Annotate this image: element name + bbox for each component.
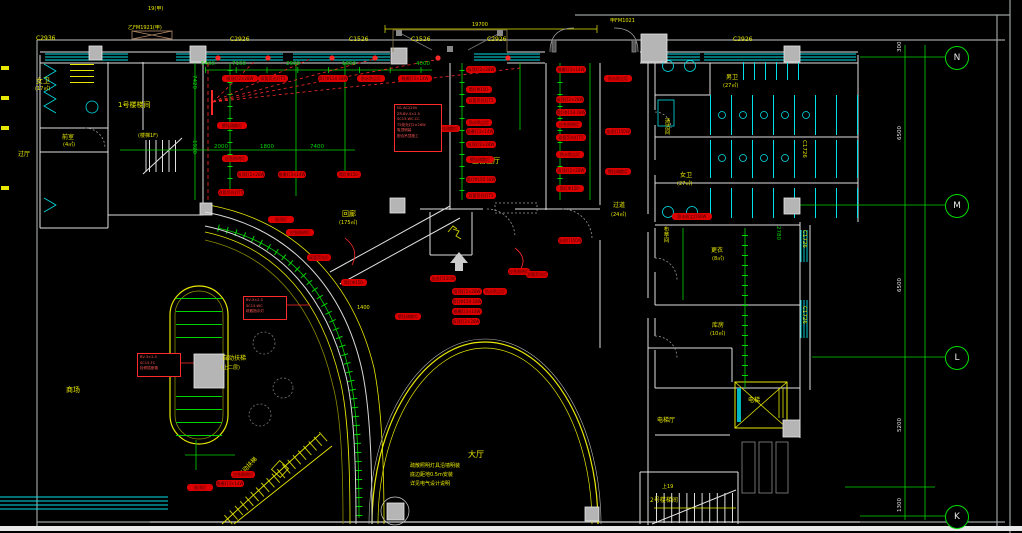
- luminaire-tag: 吸顶灯2×28W: [466, 141, 496, 148]
- room-label: 1号楼梯间: [118, 102, 150, 109]
- luminaire-tag: 格栅灯3×14W: [556, 66, 586, 73]
- room-area: (上二层): [221, 366, 240, 371]
- room-area: (27㎡): [723, 84, 738, 89]
- window-tag: C2926: [230, 37, 249, 43]
- annotation-layer: C2936C2926C1526C1526C2926C2926C1726C1726…: [0, 0, 1022, 533]
- axis-dimension: 6500: [898, 278, 904, 292]
- room-label: 男卫: [726, 75, 738, 81]
- door-tag: 19(甲): [148, 7, 163, 12]
- note-line: 检修插座箱: [140, 366, 178, 372]
- room-label: 大厅: [468, 451, 484, 459]
- room-label: 布草间: [662, 226, 668, 243]
- room-label: 过道: [613, 203, 625, 209]
- luminaire-tag: 防水防尘灯60W: [556, 151, 584, 158]
- room-label: 过厅: [18, 152, 30, 158]
- dimension: 19700: [472, 23, 488, 28]
- room-label: 电梯: [748, 398, 760, 404]
- dimension: 5400: [201, 62, 215, 68]
- cad-floor-plan-viewport: C2936C2926C1526C1526C2926C2926C1726C1726…: [0, 0, 1022, 533]
- luminaire-tag: 筒灯Φ150-18W: [466, 86, 492, 93]
- luminaire-tag: 吸顶灯2×28W: [237, 171, 265, 178]
- room-area: (17㎡): [35, 87, 50, 92]
- door-tag: 乙FM1921(甲): [128, 26, 162, 31]
- room-label: 女卫: [36, 78, 50, 85]
- note-text: 疏散照明灯具沿墙明装: [410, 464, 460, 469]
- room-label: 电梯厅: [657, 418, 675, 424]
- luminaire-tag: 吸顶灯2×28W: [268, 216, 294, 223]
- circuit-note-box: N1 AC220VZR-BV-3×2.5SC15-WC.CCT5荧光灯2×28W…: [394, 104, 442, 152]
- luminaire-tag: 双管荧光灯T5: [526, 271, 548, 278]
- circuit-note-box: BV-3×2.5SC15-FC检修插座箱: [137, 353, 181, 377]
- luminaire-tag: 吸顶灯2×28W: [452, 288, 482, 295]
- luminaire-tag: 筒灯Φ150-18W: [337, 171, 361, 178]
- axis-dimension: 1300: [898, 498, 904, 512]
- window-tag: C1526: [411, 37, 430, 43]
- room-area: (10㎡): [710, 332, 725, 337]
- luminaire-tag: 壁挂疏散灯: [466, 156, 494, 163]
- room-area: (楼梯1F): [138, 134, 158, 139]
- dimension: 1920: [191, 140, 197, 154]
- axis-dimension: 6500: [898, 126, 904, 140]
- window-tag: C2926: [487, 37, 506, 43]
- room-area: (24㎡): [611, 213, 626, 218]
- luminaire-tag: 防水防尘灯60W: [466, 119, 492, 126]
- luminaire-tag: 筒灯Φ150-18W: [466, 176, 496, 183]
- luminaire-tag: 壁挂疏散灯: [605, 168, 631, 175]
- luminaire-tag: 防水防尘灯60W: [604, 75, 632, 82]
- dimension: 2000: [214, 145, 228, 151]
- luminaire-tag: 筒灯Φ150-18W: [452, 298, 482, 305]
- luminaire-tag: 金卤灯150W: [430, 275, 456, 282]
- note-text: 底边距地0.5m安装: [410, 473, 453, 478]
- window-tag: C1726: [801, 230, 807, 248]
- room-area: (27㎡): [677, 182, 692, 187]
- luminaire-tag: 吸顶灯2×28W: [466, 66, 496, 73]
- luminaire-tag: 双管荧光灯T5: [556, 134, 586, 141]
- dimension: 1650: [342, 62, 356, 68]
- luminaire-tag: 应急照明灯: [231, 471, 255, 478]
- luminaire-tag: 应急照明灯: [286, 229, 314, 236]
- window-tag: C2926: [733, 37, 752, 43]
- grid-axis-bubble: N: [945, 46, 969, 70]
- luminaire-tag: 双管荧光灯T5: [466, 192, 496, 199]
- luminaire-tag: 吸顶灯2×28W: [187, 484, 213, 491]
- luminaire-tag: 应急照明灯: [222, 155, 248, 162]
- grid-axis-bubble: K: [945, 505, 969, 529]
- luminaire-tag: 吸顶灯2×28W: [452, 318, 480, 325]
- luminaire-tag: 筒灯Φ150-18W: [318, 75, 348, 82]
- note-line: 配合吊顶施工: [397, 134, 439, 140]
- luminaire-tag: 格栅灯3×14W: [466, 128, 494, 135]
- luminaire-tag: 双管荧光灯T5: [307, 254, 331, 261]
- room-label: 前室: [62, 135, 74, 141]
- luminaire-tag: 双管荧光灯T5: [466, 97, 496, 104]
- luminaire-tag: 格栅灯3×14W: [452, 308, 482, 315]
- room-label: 2号楼梯间: [650, 498, 678, 504]
- window-tag: C1726: [801, 306, 807, 324]
- dimension: 7100: [232, 62, 246, 68]
- dimension: 2780: [775, 226, 781, 240]
- dimension: 7400: [310, 145, 324, 151]
- stair-note: 上19: [662, 485, 673, 490]
- door-tag: 甲FM1021: [610, 19, 635, 24]
- window-tag: C2936: [36, 36, 55, 42]
- luminaire-tag: 壁挂疏散灯: [395, 313, 421, 320]
- luminaire-tag: 应急照明灯: [556, 121, 582, 128]
- window-tag: C1526: [349, 37, 368, 43]
- dimension: 1400: [357, 306, 370, 311]
- dimension: 4000: [416, 62, 430, 68]
- luminaire-tag: 防水防尘灯60W: [357, 75, 385, 82]
- dimension: 1800: [260, 145, 274, 151]
- room-label: 回廊: [342, 211, 356, 218]
- luminaire-tag: 防水防尘灯60W: [672, 213, 712, 220]
- axis-dimension: 300: [898, 42, 904, 53]
- luminaire-tag: 格栅灯3×14W: [216, 480, 244, 487]
- circuit-note-box: BV-3×2.5SC15-WC疏散指示灯: [243, 296, 287, 320]
- room-label: 自动扶梯: [222, 356, 246, 362]
- room-label: 库房: [712, 323, 724, 329]
- note-line: 疏散指示灯: [246, 309, 284, 315]
- luminaire-tag: 吸顶灯2×28W: [222, 75, 258, 82]
- luminaire-tag: 格栅灯3×14W: [278, 171, 306, 178]
- luminaire-tag: 吸顶灯2×28W: [556, 167, 586, 174]
- grid-axis-bubble: L: [945, 346, 969, 370]
- note-text: 详见电气设计说明: [410, 482, 450, 487]
- room-label: 商场: [66, 387, 80, 394]
- luminaire-tag: 金卤灯150W: [605, 128, 631, 135]
- grid-axis-bubble: M: [945, 194, 969, 218]
- luminaire-tag: 金卤灯150W: [558, 237, 582, 244]
- axis-dimension: 5200: [898, 418, 904, 432]
- dimension: 7420: [191, 75, 197, 89]
- luminaire-tag: 筒灯Φ150-18W: [556, 185, 584, 192]
- luminaire-tag: 双管荧光灯T5: [258, 75, 288, 82]
- room-label: 更衣: [711, 248, 723, 254]
- room-area: (8㎡): [712, 257, 724, 262]
- room-label: 清洁间: [663, 118, 669, 135]
- luminaire-tag: 格栅灯3×14W: [398, 75, 432, 82]
- luminaire-tag: 双管荧光灯T5: [218, 189, 244, 196]
- window-tag: C1726: [801, 140, 807, 158]
- luminaire-tag: 吸顶灯2×28W: [556, 96, 584, 103]
- room-area: (175㎡): [339, 221, 357, 226]
- luminaire-tag: 筒灯Φ150-18W: [556, 109, 586, 116]
- luminaire-tag: 防水防尘灯60W: [483, 288, 507, 295]
- dimension: 2600: [286, 62, 300, 68]
- luminaire-tag: 筒灯Φ150-18W: [341, 279, 367, 286]
- room-area: (4㎡): [63, 143, 75, 148]
- room-label: 女卫: [680, 173, 692, 179]
- luminaire-tag: 壁挂疏散灯: [217, 122, 247, 129]
